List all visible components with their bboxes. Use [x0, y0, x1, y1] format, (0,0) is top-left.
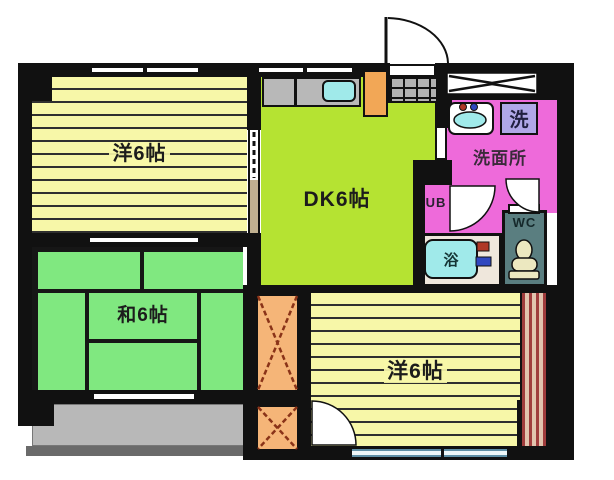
wall: [557, 95, 574, 287]
entrance-door-icon: [386, 17, 448, 64]
window-icon: [259, 66, 303, 74]
partition-dashed: [248, 130, 260, 180]
floor-dining-kitchen: [261, 77, 413, 285]
wall: [243, 285, 255, 460]
washing-machine-icon: 洗: [500, 102, 538, 135]
label-unit-bath: UB: [420, 196, 452, 209]
wall: [18, 390, 54, 426]
washing-machine-label: 洗: [509, 105, 528, 132]
wall: [300, 293, 311, 460]
window-icon: [147, 66, 198, 74]
label-toilet: WC: [502, 216, 547, 229]
tatami-mat: [201, 293, 243, 390]
fridge-space: [363, 70, 388, 117]
closet-tall: [255, 293, 300, 393]
partition-panel: [248, 180, 260, 233]
bathtub-label: 浴: [443, 249, 458, 270]
sliding-door-icon: [94, 392, 194, 401]
floor-unit-bath: [418, 185, 502, 235]
window-icon: [307, 66, 352, 74]
floor-hallway: [413, 101, 435, 161]
washbasin-icon: [448, 102, 494, 135]
floor-plan-canvas: 洗 浴 洋6帖 DK6帖 和6帖 洋6帖 洗面所 UB WC: [0, 0, 614, 480]
kitchen-sink-icon: [322, 80, 356, 102]
tatami-mat: [144, 252, 243, 289]
toilet-door-sill: [508, 204, 540, 214]
label-west-room-top: 洋6帖: [32, 143, 247, 165]
counter-divider: [294, 77, 297, 107]
storage-stripe-zone: [520, 293, 546, 446]
balcony: [32, 404, 250, 446]
wall: [243, 285, 563, 293]
bathtub-icon: 浴: [424, 239, 478, 279]
closet-square: [255, 404, 300, 452]
label-japanese-room: 和6帖: [89, 306, 197, 325]
label-dining-kitchen: DK6帖: [261, 189, 413, 210]
tatami-mat: [89, 343, 197, 390]
label-west-room-bottom: 洋6帖: [311, 360, 520, 383]
window-icon: [444, 449, 507, 457]
window-icon: [92, 66, 143, 74]
balcony-rail: [26, 446, 251, 456]
window-icon: [352, 449, 441, 457]
label-washroom: 洗面所: [443, 150, 557, 167]
tatami-mat: [38, 293, 85, 390]
entrance-floor: [388, 75, 438, 103]
wall: [435, 63, 574, 100]
tatami-mat: [38, 252, 140, 289]
sliding-door-icon: [90, 236, 198, 244]
